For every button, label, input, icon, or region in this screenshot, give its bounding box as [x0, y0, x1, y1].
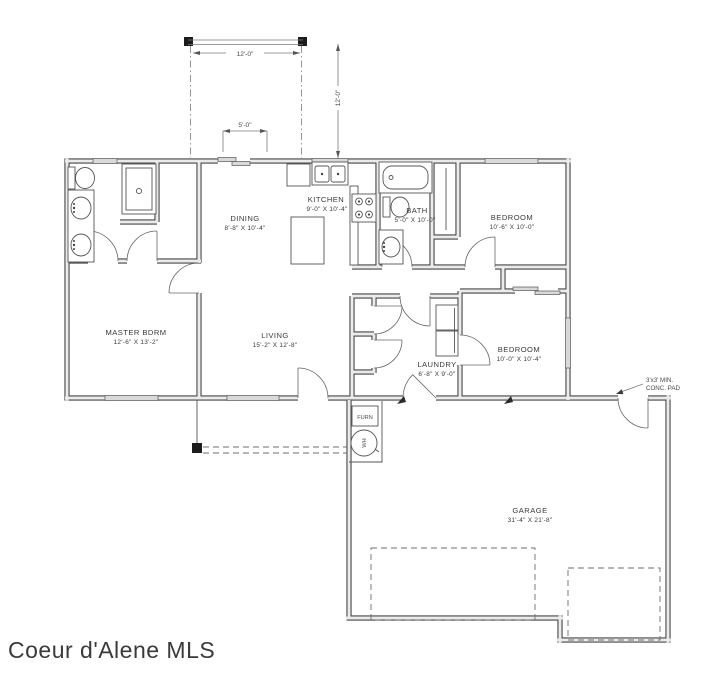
- garage-slab-pad: [371, 548, 535, 620]
- stove-icon: [352, 194, 376, 222]
- hall-laundry-door: [400, 296, 430, 326]
- vanity-sink-icon: [379, 230, 403, 264]
- toilet-icon: [68, 167, 95, 189]
- svg-text:5'-0": 5'-0": [238, 122, 252, 129]
- svg-text:12'-0": 12'-0": [335, 89, 342, 106]
- floor-plan-page: 12'-0" 12'-0" 5'-0" 3'x3' MIN. CONC. PAD…: [0, 0, 720, 683]
- window-icon: [105, 396, 158, 401]
- porch-post: [192, 443, 202, 453]
- shower-icon: [122, 164, 156, 214]
- room-label-bedroom2: BEDROOM: [498, 345, 540, 354]
- svg-text:3'x3' MIN.: 3'x3' MIN.: [646, 377, 673, 384]
- closet-sliding-door-icon: [513, 287, 560, 295]
- room-label-garage: GARAGE: [512, 506, 547, 515]
- room-dims-garage: 31'-4" X 21'-8": [508, 517, 553, 524]
- room-dims-kitchen: 9'-0" X 10'-4": [306, 206, 347, 213]
- floor-plan-drawing: 12'-0" 12'-0" 5'-0" 3'x3' MIN. CONC. PAD…: [0, 0, 720, 683]
- room-dims-living: 15'-2" X 12'-8": [253, 342, 298, 349]
- bedroom1-door: [465, 237, 495, 267]
- windows: [93, 158, 571, 401]
- fixtures: [68, 162, 458, 462]
- conc-pad-note: 3'x3' MIN. CONC. PAD: [616, 377, 680, 394]
- room-label-bath: BATH: [406, 206, 428, 215]
- svg-text:12'-0": 12'-0": [237, 51, 254, 58]
- laundry-closet-doors: [374, 306, 402, 368]
- room-label-dining: DINING: [230, 214, 259, 223]
- front-door: [298, 368, 328, 398]
- room-dims-bath: 5'-0" X 10'-0": [394, 217, 435, 224]
- deck-depth-dimension: 12'-0": [335, 44, 342, 158]
- room-dims-dining: 8'-8" X 10'-4": [224, 225, 265, 232]
- room-label-master: MASTER BDRM: [105, 328, 166, 337]
- room-label-kitchen: KITCHEN: [308, 195, 344, 204]
- washer-dryer-icon: [436, 305, 458, 356]
- outdoor-elements: [184, 37, 660, 640]
- garage-entry-door: [403, 375, 436, 398]
- room-label-living: LIVING: [261, 331, 289, 340]
- room-label-bedroom1: BEDROOM: [491, 213, 533, 222]
- slider-width-dimension: 5'-0": [223, 122, 267, 152]
- sliding-door-icon: [218, 158, 250, 166]
- room-dims-bedroom2: 10'-0" X 10'-4": [497, 356, 542, 363]
- toilet-icon: [383, 197, 409, 217]
- room-label-laundry: LAUNDRY: [417, 360, 456, 369]
- room-dims-master: 12'-6" X 13'-2": [114, 339, 159, 346]
- water-heater-label: WH: [362, 438, 368, 447]
- master-closet-door: [127, 231, 157, 261]
- room-labels: DINING 8'-8" X 10'-4" KITCHEN 9'-0" X 10…: [105, 195, 552, 524]
- bathtub-icon: [379, 162, 432, 193]
- kitchen-island: [291, 217, 324, 264]
- room-dims-bedroom1: 10'-6" X 10'-0": [490, 224, 535, 231]
- window-icon: [93, 159, 117, 164]
- garage-man-door: [618, 398, 648, 428]
- window-icon: [227, 396, 279, 401]
- mls-watermark: Coeur d'Alene MLS: [8, 637, 215, 663]
- kitchen-cabinet: [287, 164, 310, 186]
- master-bedroom-door: [169, 263, 199, 293]
- window-icon: [566, 318, 571, 368]
- window-icon: [485, 159, 538, 164]
- garage-slab-pad: [568, 568, 660, 640]
- deck-width-dimension: 12'-0": [193, 51, 300, 58]
- bedroom2-door: [460, 335, 490, 365]
- room-dims-laundry: 6'-8" X 9'-0": [418, 371, 455, 378]
- double-vanity-sink-icon: [68, 190, 94, 262]
- svg-text:CONC. PAD: CONC. PAD: [646, 385, 680, 392]
- mechanical-closet: [349, 401, 382, 462]
- kitchen-sink-icon: [312, 162, 348, 185]
- furnace-label: FURN: [357, 415, 373, 421]
